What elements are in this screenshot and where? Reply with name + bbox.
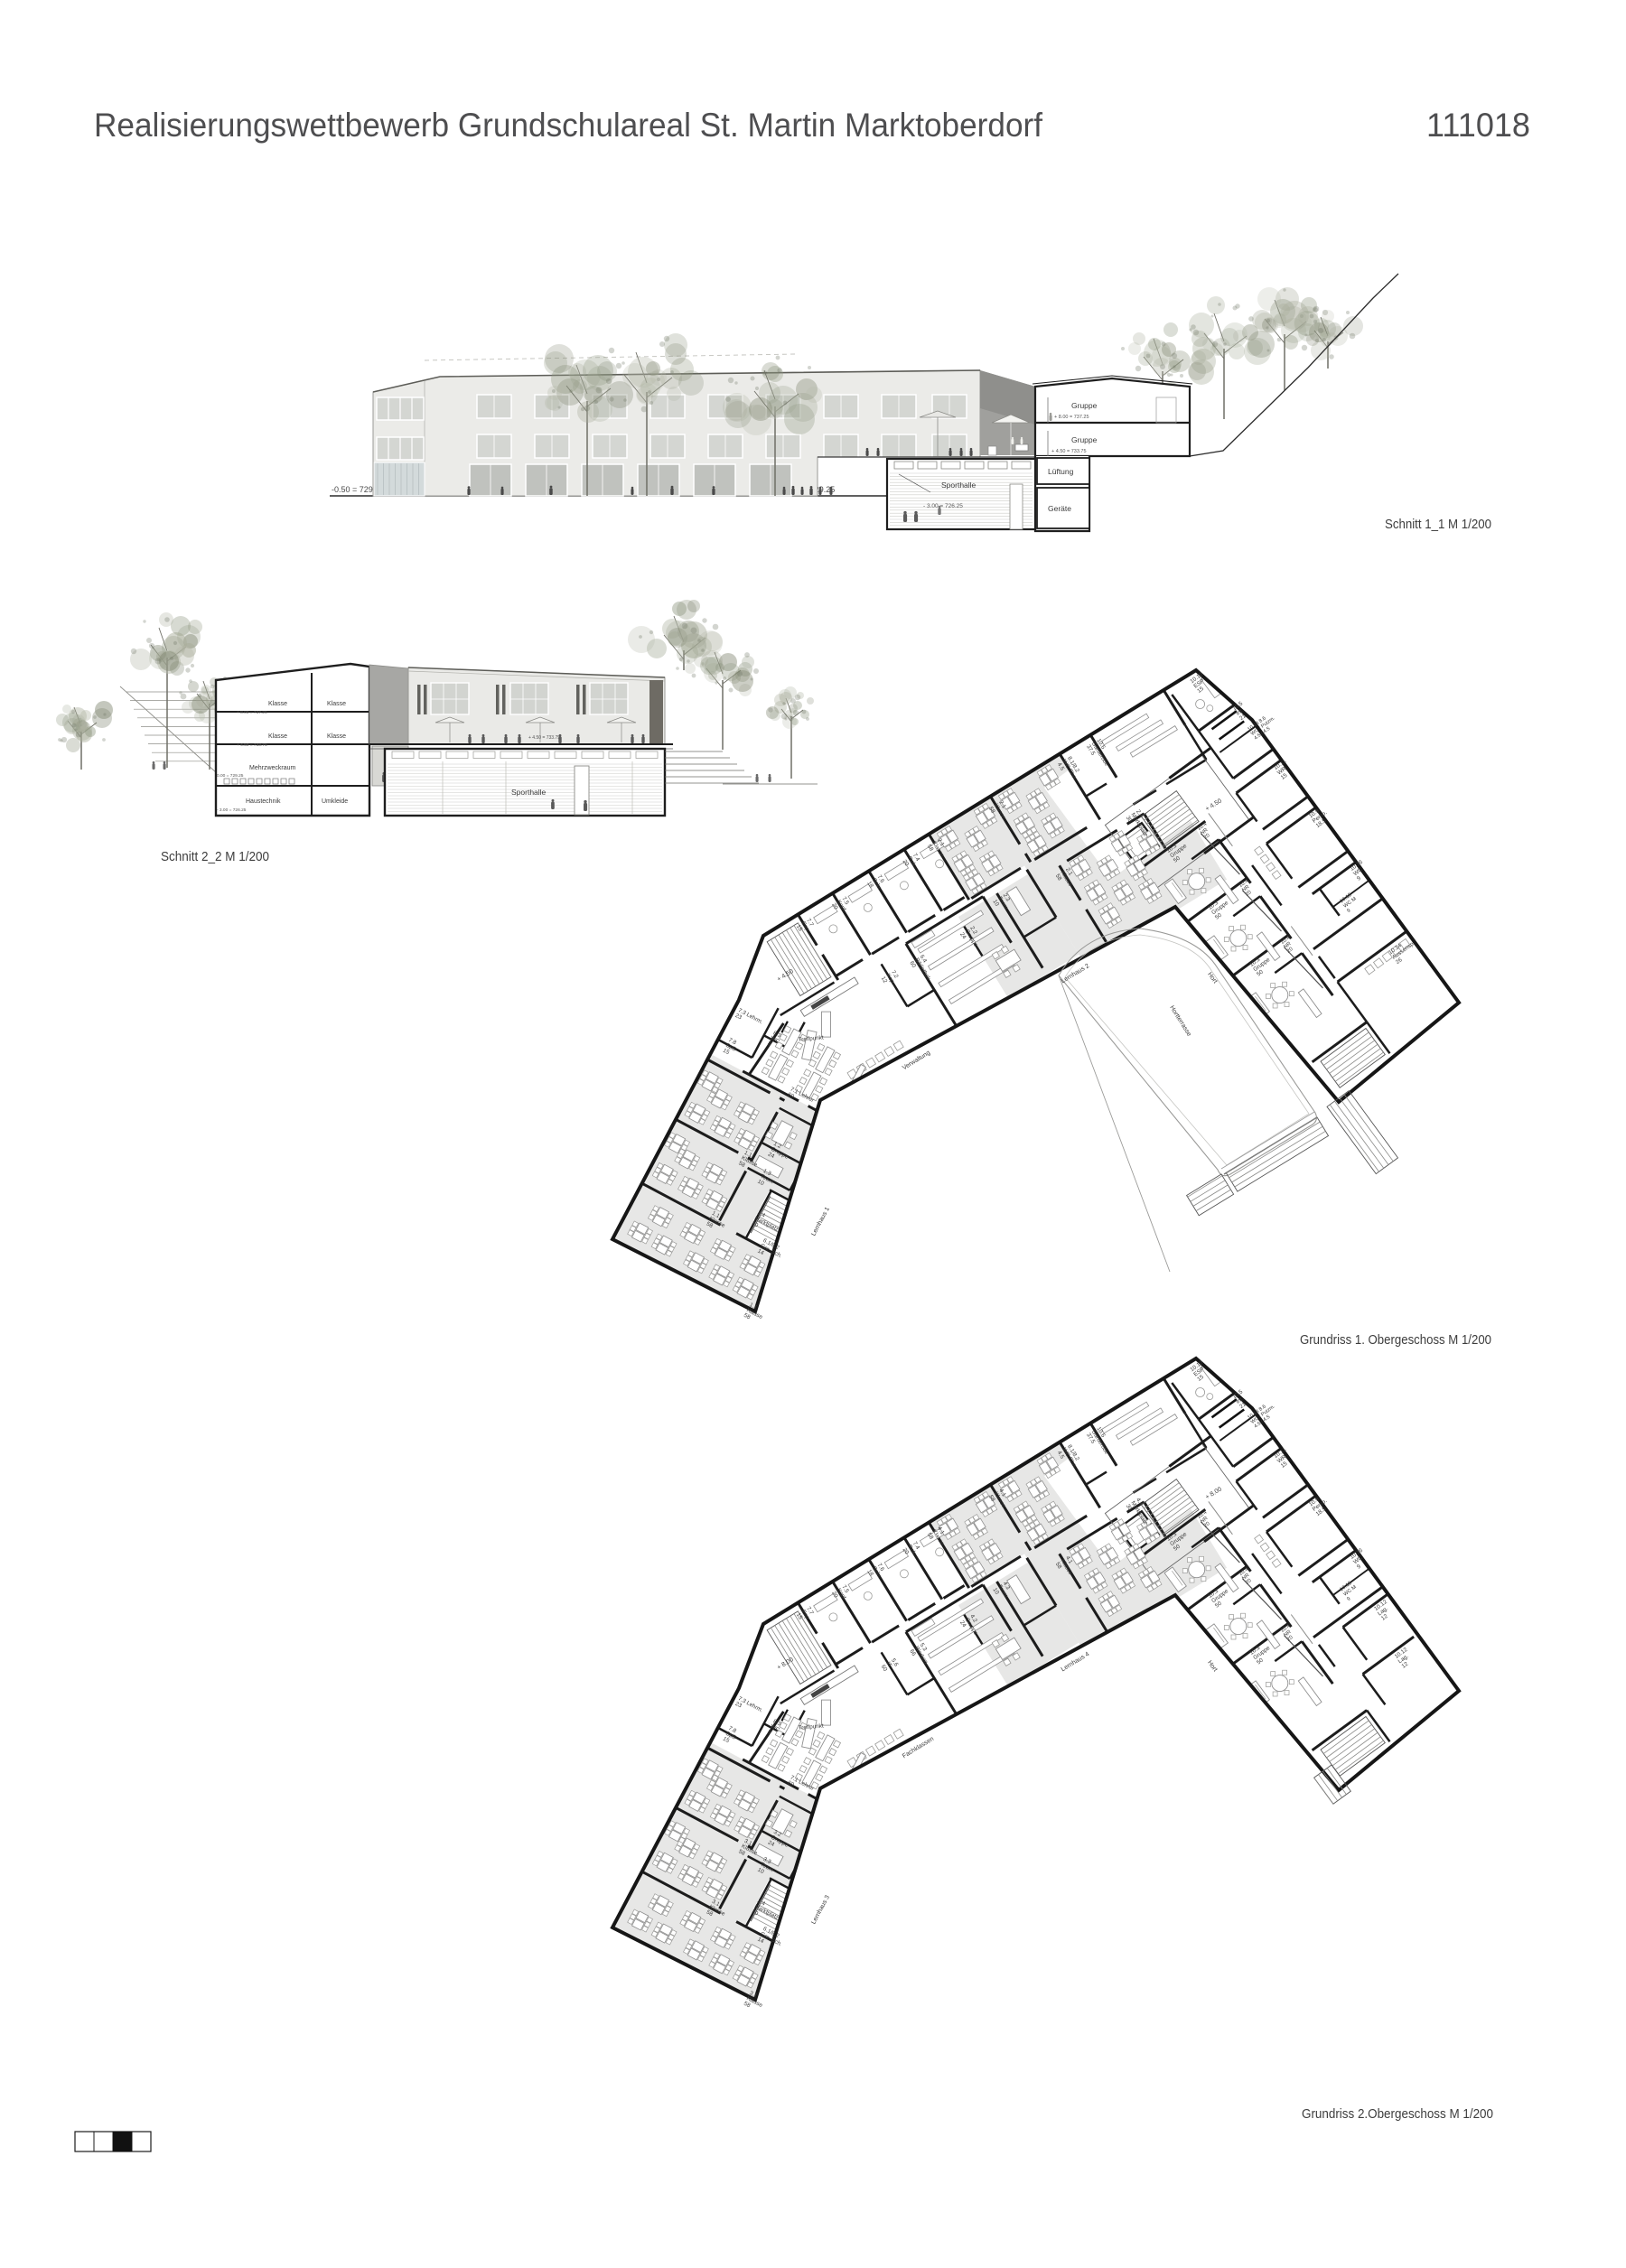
svg-text:+ 4.50 = 733.75: + 4.50 = 733.75 (237, 742, 267, 748)
svg-text:+ 4.50 = 733.75: + 4.50 = 733.75 (1051, 449, 1087, 454)
svg-text:+ 8.00 = 737.25: + 8.00 = 737.25 (1054, 415, 1089, 420)
svg-text:Schnitt 1_1 M 1/200: Schnitt 1_1 M 1/200 (1385, 517, 1491, 532)
svg-text:Klasse: Klasse (268, 733, 287, 740)
svg-text:Grundriss 2.Obergeschoss M 1/2: Grundriss 2.Obergeschoss M 1/200 (1302, 2106, 1493, 2122)
svg-text:Hort: Hort (1206, 1659, 1218, 1673)
svg-text:Gruppe: Gruppe (1071, 401, 1098, 410)
svg-text:Geräte: Geräte (1048, 504, 1071, 513)
svg-text:Mehrzweckraum: Mehrzweckraum (249, 765, 296, 771)
svg-text:Klasse: Klasse (327, 701, 346, 707)
svg-text:Gruppe: Gruppe (1071, 435, 1098, 444)
svg-text:Lüftung: Lüftung (1048, 467, 1074, 476)
svg-text:Umkleide: Umkleide (322, 798, 348, 805)
svg-text:+ 4.50 = 733.75: + 4.50 = 733.75 (528, 735, 560, 741)
svg-text:Haustechnik: Haustechnik (246, 798, 281, 805)
svg-text:Hortterrasse: Hortterrasse (1168, 1004, 1191, 1037)
svg-text:+ 8.00 = 737.25: + 8.00 = 737.25 (237, 710, 267, 715)
svg-text:Grundriss 1. Obergeschoss M 1/: Grundriss 1. Obergeschoss M 1/200 (1300, 1332, 1491, 1348)
svg-text:Klasse: Klasse (327, 733, 346, 740)
svg-text:Sporthalle: Sporthalle (941, 481, 977, 490)
svg-text:- 3.00 = 726.25: - 3.00 = 726.25 (923, 503, 963, 509)
svg-text:Realisierungswettbewerb Grunds: Realisierungswettbewerb Grundschulareal … (94, 107, 1043, 144)
svg-text:Hort: Hort (1206, 971, 1218, 985)
svg-text:- 3.00 = 726.25: - 3.00 = 726.25 (217, 807, 247, 813)
svg-text:Lernhaus 1: Lernhaus 1 (810, 1206, 831, 1237)
svg-text:111018: 111018 (1426, 107, 1530, 144)
svg-text:Lernhaus 3: Lernhaus 3 (810, 1894, 831, 1925)
svg-text:0.00 = 729.25: 0.00 = 729.25 (217, 773, 244, 779)
svg-text:Sporthalle: Sporthalle (511, 788, 547, 797)
svg-text:Schnitt 2_2 M 1/200: Schnitt 2_2 M 1/200 (161, 849, 269, 864)
svg-text:Klasse: Klasse (268, 701, 287, 707)
